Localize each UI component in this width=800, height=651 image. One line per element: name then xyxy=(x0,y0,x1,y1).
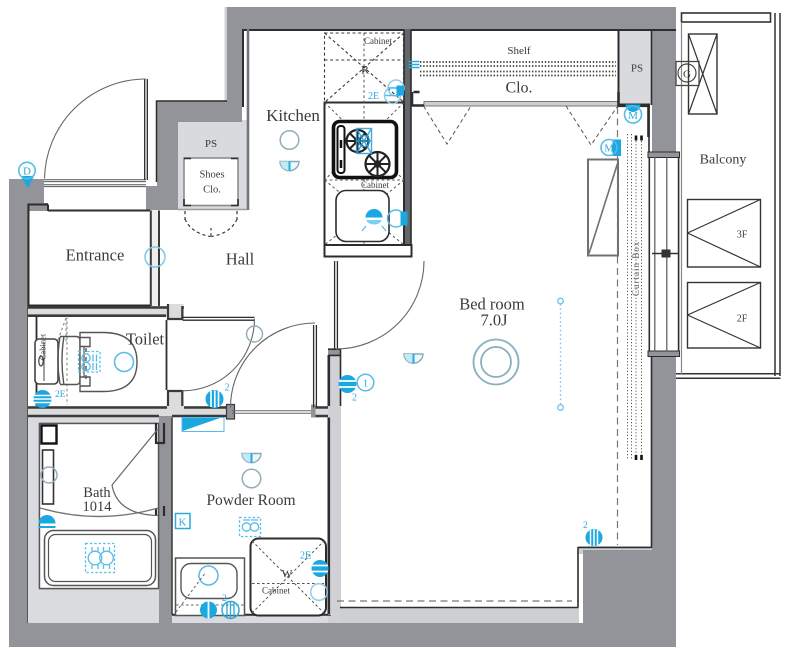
svg-text:2E: 2E xyxy=(55,390,66,400)
svg-text:Entrance: Entrance xyxy=(66,246,125,265)
svg-text:Cabinet: Cabinet xyxy=(38,333,48,360)
svg-text:M: M xyxy=(604,144,614,155)
svg-text:3F: 3F xyxy=(737,230,748,241)
svg-text:2E: 2E xyxy=(300,551,311,562)
svg-text:2: 2 xyxy=(583,521,588,531)
svg-text:Powder Room: Powder Room xyxy=(206,492,295,509)
svg-text:2: 2 xyxy=(225,383,230,394)
svg-text:D: D xyxy=(23,166,31,178)
svg-text:2: 2 xyxy=(352,393,357,404)
svg-text:Balcony: Balcony xyxy=(700,153,747,168)
svg-text:1: 1 xyxy=(363,378,369,390)
svg-text:M: M xyxy=(628,110,638,122)
svg-text:2: 2 xyxy=(222,594,227,604)
svg-text:1014: 1014 xyxy=(83,499,113,515)
svg-text:7.0J: 7.0J xyxy=(480,311,508,330)
svg-text:Cabinet: Cabinet xyxy=(364,36,392,46)
svg-text:Curtain Box: Curtain Box xyxy=(631,241,641,296)
svg-text:W: W xyxy=(282,569,293,581)
svg-text:R: R xyxy=(361,63,369,77)
svg-text:Kitchen: Kitchen xyxy=(266,106,320,125)
svg-text:Hall: Hall xyxy=(226,250,255,269)
svg-text:Cabinet: Cabinet xyxy=(262,586,290,596)
svg-text:Clo.: Clo. xyxy=(505,80,532,97)
svg-text:K: K xyxy=(179,517,187,529)
svg-text:Shelf: Shelf xyxy=(507,45,531,57)
svg-text:2E: 2E xyxy=(368,91,379,102)
svg-text:Cabinet: Cabinet xyxy=(361,180,389,190)
svg-text:Clo.: Clo. xyxy=(203,185,221,196)
svg-text:PS: PS xyxy=(205,138,217,150)
svg-text:2F: 2F xyxy=(737,314,748,325)
svg-text:G: G xyxy=(683,69,691,81)
svg-text:PS: PS xyxy=(631,63,643,75)
svg-text:Toilet: Toilet xyxy=(126,330,165,349)
svg-text:Shoes: Shoes xyxy=(199,170,224,181)
